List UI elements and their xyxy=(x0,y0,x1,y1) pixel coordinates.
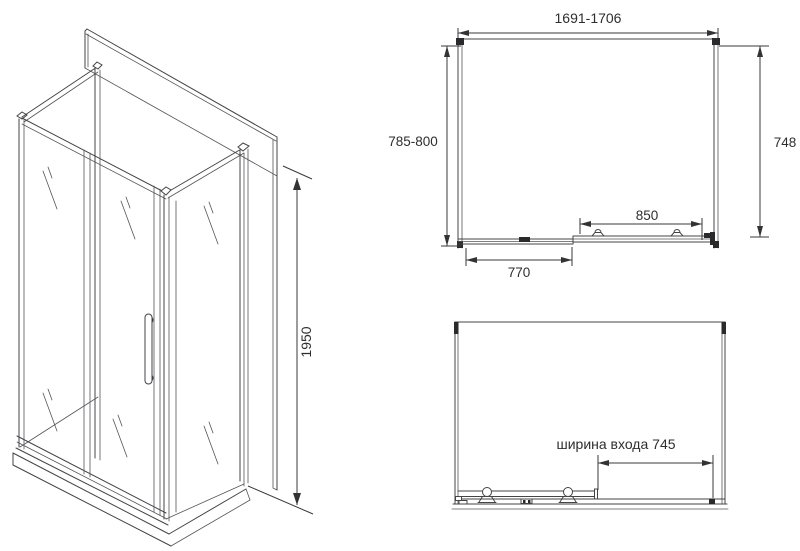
dimension-fixed-panel: 770 xyxy=(466,247,572,280)
plan-fixed-panel xyxy=(458,237,573,244)
shower-tray xyxy=(13,453,250,546)
plan-roller-right xyxy=(671,230,683,237)
dimension-depth-range: 785-800 xyxy=(388,46,461,246)
drawing-canvas: 1950 xyxy=(0,0,800,551)
plan-sliding-door xyxy=(573,230,715,246)
plan-roller-left xyxy=(592,230,604,237)
front-roller-right xyxy=(559,488,577,503)
door-width-label: 850 xyxy=(636,208,659,223)
depth-range-label: 785-800 xyxy=(388,134,438,149)
iso-view: 1950 xyxy=(13,29,314,546)
glass-shine-marks xyxy=(43,167,218,464)
overall-width-label: 1691-1706 xyxy=(555,10,622,26)
fixed-panel-label: 770 xyxy=(508,265,531,280)
dimension-height-1950: 1950 xyxy=(248,166,314,514)
right-side-panel xyxy=(161,143,249,521)
front-sliding-door-bar xyxy=(456,488,716,505)
dimension-overall-width: 1691-1706 xyxy=(458,10,718,38)
dimension-inner-depth: 748 xyxy=(719,46,796,237)
entry-width-label: ширина входа 745 xyxy=(556,436,675,452)
door-stopper xyxy=(709,499,715,505)
front-view: ширина входа 745 xyxy=(452,322,728,509)
door-handle xyxy=(145,314,153,384)
inner-depth-label: 748 xyxy=(774,135,797,150)
dimension-entry-width: ширина входа 745 xyxy=(556,436,713,498)
plan-view: 1691-1706 785-800 748 850 xyxy=(388,10,796,280)
height-label: 1950 xyxy=(298,326,314,357)
front-roller-left xyxy=(478,488,496,503)
technical-drawing-page: 1950 xyxy=(0,0,800,551)
